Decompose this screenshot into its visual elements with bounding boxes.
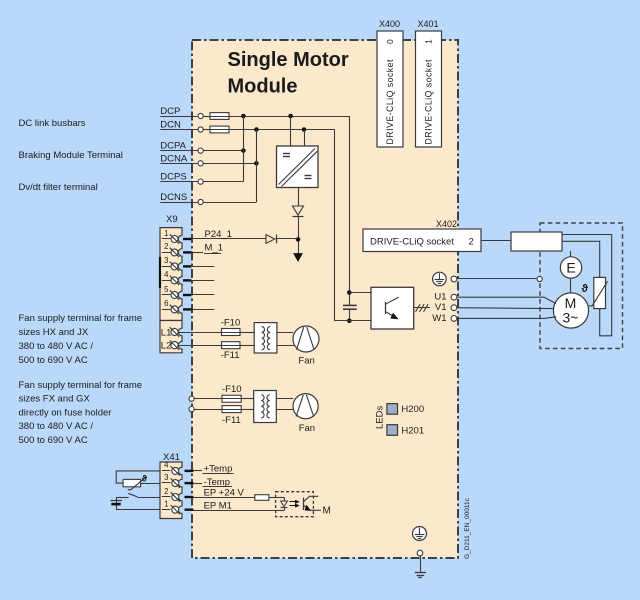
- svg-text:2: 2: [164, 242, 168, 251]
- svg-text:6: 6: [164, 299, 168, 308]
- svg-text:DCN: DCN: [160, 120, 181, 131]
- svg-text:ϑ: ϑ: [582, 283, 589, 295]
- svg-text:X402: X402: [436, 219, 457, 229]
- svg-text:G_D211_EN_00011c: G_D211_EN_00011c: [464, 497, 471, 559]
- svg-text:V1: V1: [435, 302, 447, 313]
- svg-text:3~: 3~: [563, 310, 579, 326]
- svg-text:LEDs: LEDs: [375, 406, 386, 429]
- svg-text:DRIVE-CLiQ socket: DRIVE-CLiQ socket: [424, 59, 434, 144]
- svg-text:DCP: DCP: [160, 106, 180, 117]
- svg-text:X400: X400: [379, 19, 400, 29]
- svg-text:Dv/dt filter terminal: Dv/dt filter terminal: [19, 182, 98, 193]
- svg-text:EP M1: EP M1: [204, 500, 232, 511]
- svg-text:-F11: -F11: [222, 415, 241, 426]
- svg-text:DC link busbars: DC link busbars: [19, 118, 86, 129]
- svg-text:X401: X401: [418, 19, 439, 29]
- svg-text:sizes HX and JX: sizes HX and JX: [19, 327, 89, 338]
- svg-text:DRIVE-CLiQ socket: DRIVE-CLiQ socket: [385, 59, 395, 144]
- svg-text:Single Motor: Single Motor: [228, 49, 349, 71]
- svg-text:+Temp: +Temp: [204, 464, 233, 475]
- svg-text:-F11: -F11: [221, 350, 240, 361]
- svg-text:sizes FX and GX: sizes FX and GX: [19, 394, 91, 405]
- svg-text:L2: L2: [161, 341, 172, 352]
- svg-text:380 to 480 V AC /: 380 to 480 V AC /: [19, 421, 94, 432]
- svg-text:H201: H201: [401, 425, 424, 436]
- svg-text:directly on fuse holder: directly on fuse holder: [19, 407, 112, 418]
- svg-text:P24_1: P24_1: [205, 229, 232, 240]
- svg-text:E: E: [566, 260, 575, 276]
- svg-text:Braking Module Terminal: Braking Module Terminal: [19, 150, 123, 161]
- svg-text:3: 3: [164, 473, 168, 482]
- svg-text:M: M: [323, 505, 331, 516]
- svg-text:DCNA: DCNA: [160, 153, 188, 164]
- svg-text:L1: L1: [161, 327, 172, 338]
- svg-text:-F10: -F10: [222, 384, 242, 395]
- svg-text:380 to 480 V AC /: 380 to 480 V AC /: [19, 341, 94, 352]
- svg-text:1: 1: [164, 229, 168, 238]
- svg-text:U1: U1: [434, 292, 446, 303]
- svg-text:4: 4: [164, 270, 169, 279]
- svg-text:DCNS: DCNS: [160, 192, 187, 203]
- svg-text:M_1: M_1: [205, 242, 223, 253]
- svg-text:Fan supply terminal for frame: Fan supply terminal for frame: [19, 380, 143, 391]
- svg-text:2: 2: [164, 487, 168, 496]
- svg-text:W1: W1: [432, 313, 446, 324]
- svg-text:H200: H200: [401, 404, 424, 415]
- svg-text:500 to 690 V AC: 500 to 690 V AC: [19, 355, 88, 366]
- svg-text:3: 3: [164, 256, 168, 265]
- svg-text:2: 2: [469, 237, 474, 248]
- svg-text:Fan supply terminal for frame: Fan supply terminal for frame: [19, 313, 143, 324]
- svg-text:1: 1: [164, 500, 168, 509]
- svg-text:500 to 690 V AC: 500 to 690 V AC: [19, 435, 88, 446]
- svg-text:Fan: Fan: [298, 356, 314, 367]
- svg-text:1: 1: [424, 39, 434, 44]
- svg-text:-F10: -F10: [221, 318, 241, 329]
- svg-text:ϑ: ϑ: [142, 474, 148, 484]
- svg-text:0: 0: [385, 39, 395, 44]
- svg-text:Fan: Fan: [299, 423, 315, 434]
- svg-text:DRIVE-CLiQ socket: DRIVE-CLiQ socket: [370, 237, 454, 248]
- svg-text:Module: Module: [228, 75, 298, 97]
- svg-text:X9: X9: [166, 214, 178, 225]
- svg-text:5: 5: [164, 285, 169, 294]
- svg-text:4: 4: [164, 461, 169, 470]
